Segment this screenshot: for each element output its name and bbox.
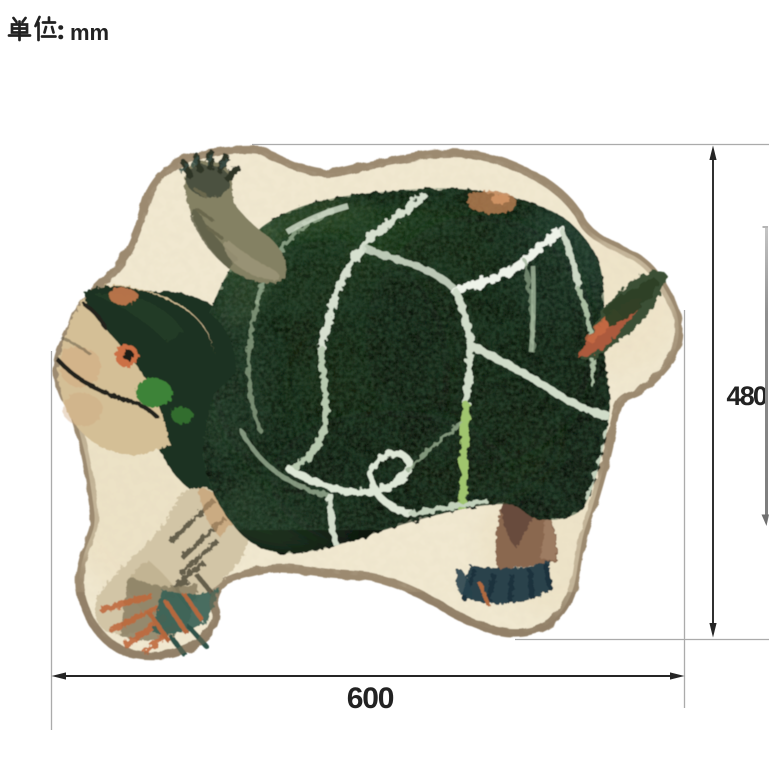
svg-text:mm: mm: [70, 20, 109, 45]
svg-text:480: 480: [727, 381, 767, 411]
svg-text:600: 600: [347, 682, 394, 715]
